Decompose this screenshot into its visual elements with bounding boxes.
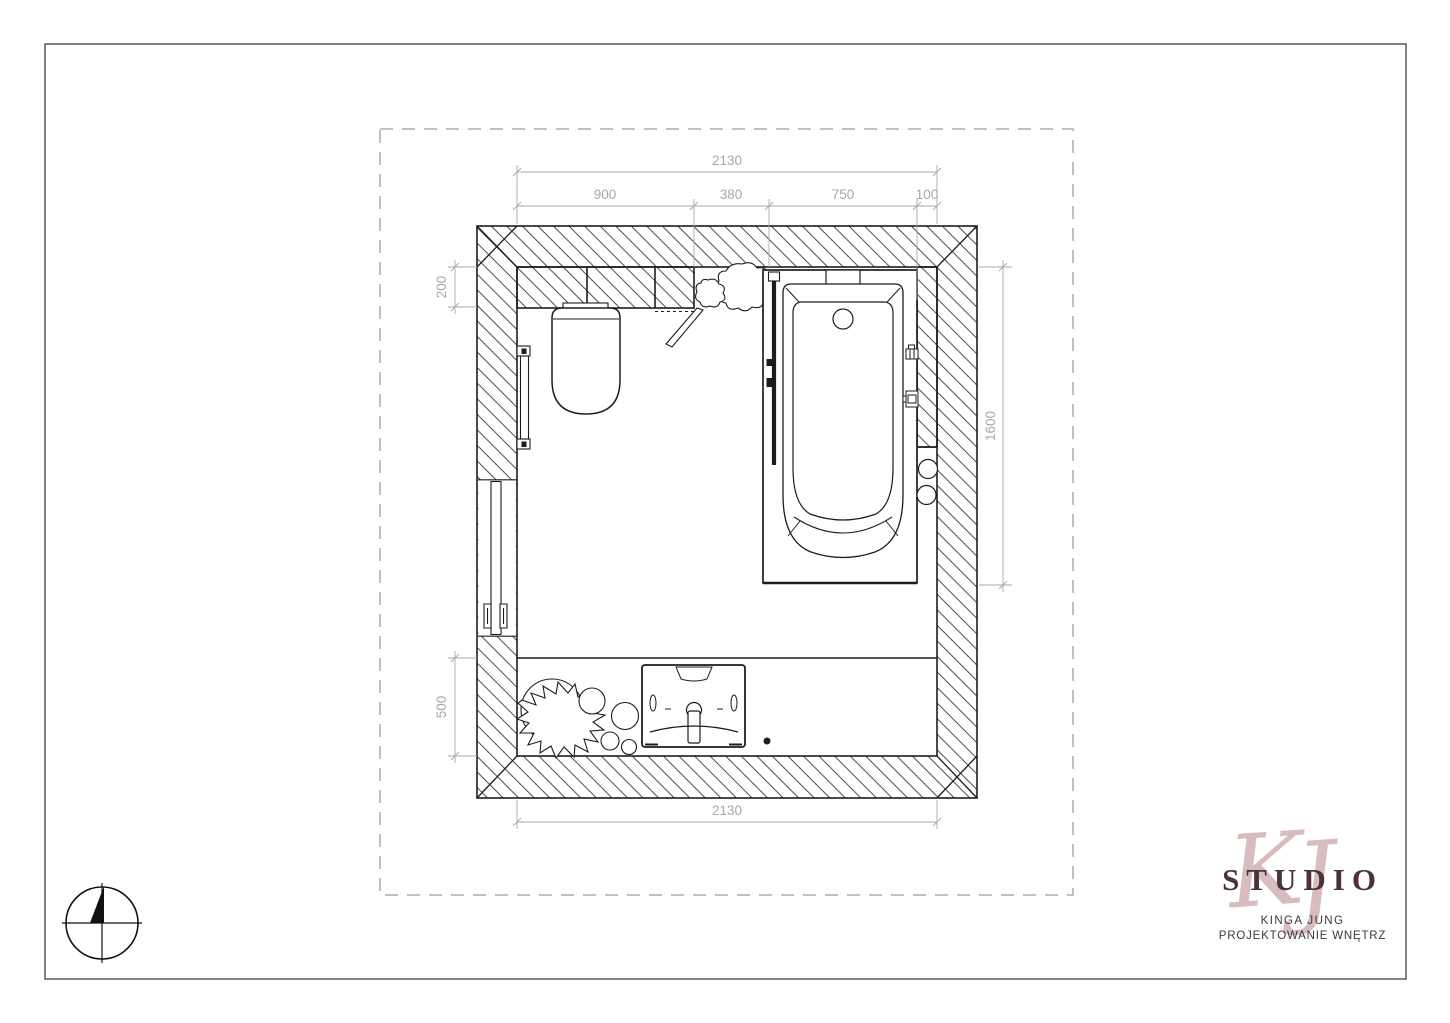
- dim-label-750: 750: [832, 187, 855, 202]
- toilet: [552, 303, 620, 414]
- logo-tagline: PROJEKTOWANIE WNĘTRZ: [1200, 930, 1405, 942]
- faucet-spout: [688, 711, 700, 743]
- dim-label-500: 500: [434, 696, 449, 719]
- dim-left-500: 500: [434, 651, 477, 763]
- screen-bracket: [767, 378, 773, 387]
- decor-stone: [601, 732, 619, 750]
- north-indicator-icon: [62, 883, 142, 963]
- logo-studio-word: STUDIO: [1200, 862, 1405, 898]
- dim-label-380: 380: [720, 187, 743, 202]
- screen-bracket: [767, 359, 773, 366]
- right-furring-strip: [917, 267, 937, 447]
- dim-right-1600: 1600: [979, 260, 1012, 592]
- dim-label-900: 900: [594, 187, 617, 202]
- bathtub: [763, 270, 918, 583]
- dim-label-1600: 1600: [983, 411, 998, 441]
- logo-designer-name: KINGA JUNG: [1200, 915, 1405, 927]
- screen-wall-mount: [769, 272, 780, 281]
- dim-left-200: 200: [434, 260, 477, 314]
- dim-label-200: 200: [434, 276, 449, 299]
- drawing-sheet: 2130 900 380 750 100 200: [0, 0, 1450, 1023]
- dim-bottom-total: 2130: [513, 800, 941, 829]
- dim-label-100: 100: [916, 187, 939, 202]
- dim-label-top-total: 2130: [712, 153, 742, 168]
- washbasin: [642, 665, 745, 747]
- decor-stone: [622, 740, 637, 755]
- studio-logo: K J STUDIO KINGA JUNG PROJEKTOWANIE WNĘT…: [1200, 815, 1405, 975]
- decor-stone: [579, 688, 605, 714]
- tub-basin: [793, 302, 893, 520]
- counter-dot: [764, 738, 771, 745]
- decor-stone: [612, 703, 639, 730]
- dim-label-bottom-total: 2130: [712, 803, 742, 818]
